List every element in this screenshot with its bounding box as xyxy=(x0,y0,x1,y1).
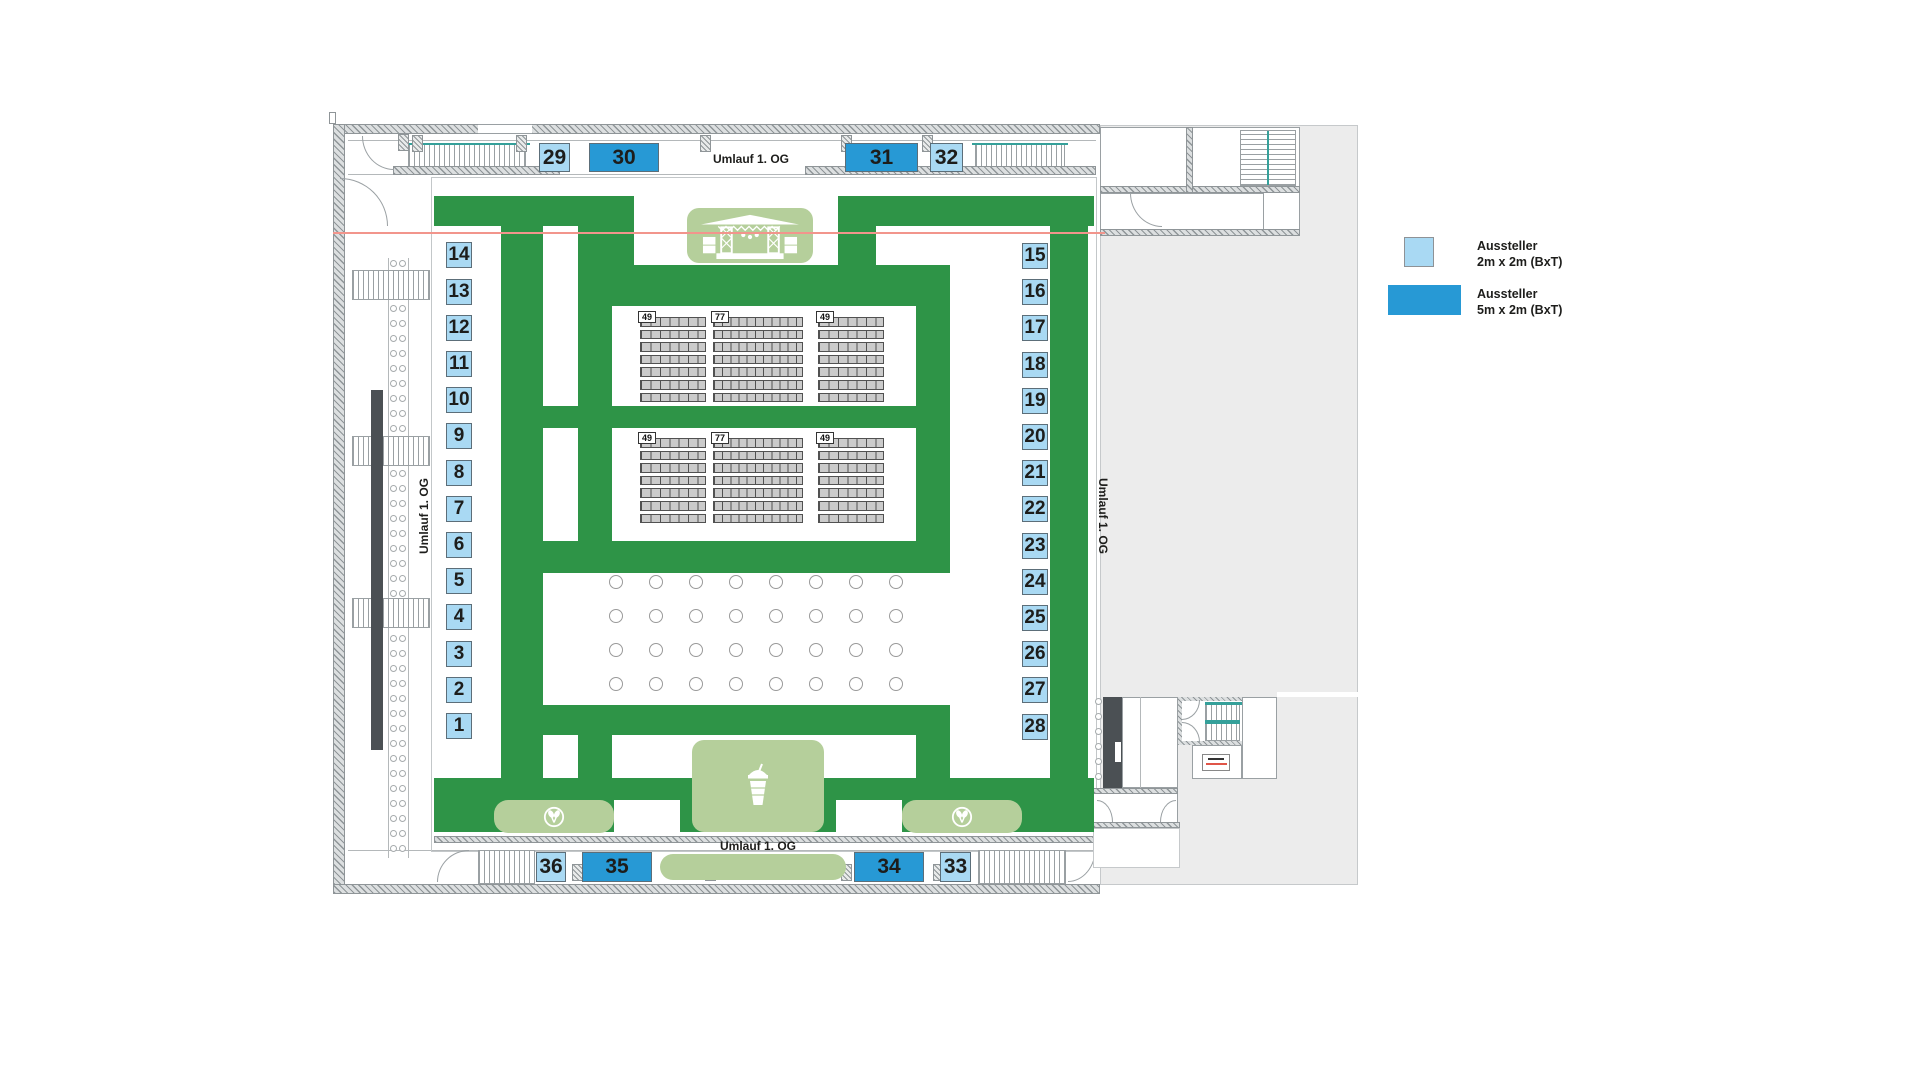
seat-row xyxy=(818,451,884,461)
wall-ornament-circle xyxy=(390,770,397,777)
wall-corner-stub xyxy=(329,112,336,124)
wall-ornament-circle xyxy=(390,740,397,747)
seat-row xyxy=(713,380,803,390)
wall-ornament-circle xyxy=(390,515,397,522)
seat-row xyxy=(640,330,706,340)
round-table xyxy=(649,609,663,623)
door-arc-bottom-left xyxy=(437,850,469,882)
booth-25[interactable]: 25 xyxy=(1022,605,1048,631)
wall-ornament-circle xyxy=(390,335,397,342)
booth-13[interactable]: 13 xyxy=(446,279,472,305)
red-reference-line xyxy=(333,232,1105,234)
wall-ornament-circle xyxy=(399,260,406,267)
round-table xyxy=(609,609,623,623)
wall-ornament-circle xyxy=(399,845,406,852)
wall-ornament-circle xyxy=(390,635,397,642)
walkway-under-stage xyxy=(578,265,950,306)
legend-2m-line1: Aussteller xyxy=(1477,238,1562,254)
wall-ornament-circle xyxy=(399,485,406,492)
wall-ornament-circle xyxy=(399,800,406,807)
wall-ornament-circle xyxy=(399,830,406,837)
booth-30[interactable]: 30 xyxy=(589,143,659,172)
wall-ornament-circle xyxy=(1095,773,1102,780)
bottom-band-notch-right xyxy=(836,800,902,832)
wall-ornament-circle xyxy=(399,470,406,477)
booth-3[interactable]: 3 xyxy=(446,641,472,667)
round-table xyxy=(649,677,663,691)
booth-27[interactable]: 27 xyxy=(1022,677,1048,703)
bottom-row-pill xyxy=(660,854,846,880)
walkway-top-band-left xyxy=(434,196,578,226)
walkway-v2-ext xyxy=(578,735,612,778)
gray-white-slit xyxy=(1277,692,1358,697)
wall-ornament-circle xyxy=(390,560,397,567)
br-label-text-red xyxy=(1206,763,1227,765)
legend-swatch-5m xyxy=(1388,285,1461,315)
wall-ornament-circle xyxy=(399,320,406,327)
legend-5m-line2: 5m x 2m (BxT) xyxy=(1477,302,1562,318)
seat-count-label: 49 xyxy=(638,311,656,323)
wall-ornament-circle xyxy=(390,425,397,432)
booth-7[interactable]: 7 xyxy=(446,496,472,522)
booth-17[interactable]: 17 xyxy=(1022,315,1048,341)
left-stair-block-3 xyxy=(352,598,430,628)
seat-row xyxy=(640,501,706,511)
booth-20[interactable]: 20 xyxy=(1022,424,1048,450)
legend-label-5m: Aussteller 5m x 2m (BxT) xyxy=(1477,286,1562,318)
stairs-bottom-left xyxy=(478,850,535,884)
br-room-white xyxy=(1122,697,1178,788)
left-dark-bar xyxy=(371,390,383,750)
wall-ornament-circle xyxy=(390,785,397,792)
seat-row xyxy=(713,367,803,377)
corridor-label-bottom: Umlauf 1. OG xyxy=(720,839,796,853)
left-stair-block-2 xyxy=(352,436,430,466)
seat-row xyxy=(640,488,706,498)
wall-ornament-circle xyxy=(390,470,397,477)
round-table xyxy=(609,677,623,691)
seat-row xyxy=(818,501,884,511)
round-table xyxy=(769,575,783,589)
booth-16[interactable]: 16 xyxy=(1022,279,1048,305)
wall-ornament-circle xyxy=(390,710,397,717)
booth-6[interactable]: 6 xyxy=(446,532,472,558)
wall-ornament-circle xyxy=(390,350,397,357)
wall-ornament-circle xyxy=(390,500,397,507)
round-table xyxy=(729,609,743,623)
booth-35[interactable]: 35 xyxy=(582,852,652,882)
booth-34[interactable]: 34 xyxy=(854,852,924,882)
round-table xyxy=(809,609,823,623)
wall-ornament-circle xyxy=(390,755,397,762)
wall-ornament-circle xyxy=(399,650,406,657)
corridor-label-top: Umlauf 1. OG xyxy=(713,152,789,166)
wall-ornament-circle xyxy=(390,845,397,852)
booth-36[interactable]: 36 xyxy=(536,852,566,882)
round-table xyxy=(649,643,663,657)
legend-label-2m: Aussteller 2m x 2m (BxT) xyxy=(1477,238,1562,270)
room-tr-wall-v xyxy=(1186,127,1193,193)
round-table xyxy=(769,609,783,623)
round-table xyxy=(849,609,863,623)
seat-row xyxy=(818,342,884,352)
round-table xyxy=(809,575,823,589)
legend-2m-line2: 2m x 2m (BxT) xyxy=(1477,254,1562,270)
legend-5m-line1: Aussteller xyxy=(1477,286,1562,302)
round-table xyxy=(729,677,743,691)
column-marker xyxy=(398,134,409,151)
stage-icon xyxy=(697,212,803,260)
wall-ornament-circle xyxy=(390,815,397,822)
corridor-label-right: Umlauf 1. OG xyxy=(1096,478,1110,554)
wall-ornament-circle xyxy=(399,380,406,387)
wall-ornament-circle xyxy=(390,800,397,807)
round-table xyxy=(729,643,743,657)
br-white-strip xyxy=(1093,828,1180,868)
seat-row xyxy=(713,463,803,473)
booth-9[interactable]: 9 xyxy=(446,423,472,449)
seat-row xyxy=(818,380,884,390)
round-table xyxy=(769,677,783,691)
bottom-band-notch-left xyxy=(614,800,680,832)
booth-2[interactable]: 2 xyxy=(446,677,472,703)
round-table xyxy=(809,643,823,657)
round-table xyxy=(889,575,903,589)
wall-ornament-circle xyxy=(399,575,406,582)
wall-ornament-circle xyxy=(390,725,397,732)
booth-19[interactable]: 19 xyxy=(1022,388,1048,414)
br-room-line xyxy=(1140,697,1141,788)
booth-31[interactable]: 31 xyxy=(845,143,918,172)
door-arc-top-left xyxy=(362,136,394,170)
smoothie-cup-icon xyxy=(745,762,771,808)
booth-11[interactable]: 11 xyxy=(446,351,472,377)
left-strip-line2 xyxy=(408,258,409,858)
wall-ornament-circle xyxy=(399,770,406,777)
seat-row xyxy=(818,393,884,403)
wall-ornament-circle xyxy=(390,680,397,687)
walkway-v2 xyxy=(578,306,612,573)
round-table xyxy=(729,575,743,589)
room-tr-band xyxy=(1100,186,1300,193)
wall-ornament-circle xyxy=(1095,728,1102,735)
wall-ornament-circle xyxy=(390,695,397,702)
stair-rail-top-left xyxy=(405,143,530,145)
wall-ornament-circle xyxy=(390,530,397,537)
corridor-label-left: Umlauf 1. OG xyxy=(417,478,431,554)
seat-row xyxy=(713,476,803,486)
booth-28[interactable]: 28 xyxy=(1022,714,1048,740)
wall-ornament-circle xyxy=(390,320,397,327)
column-marker xyxy=(700,135,711,152)
wall-ornament-circle xyxy=(399,365,406,372)
seat-row xyxy=(640,380,706,390)
seat-row xyxy=(713,330,803,340)
booth-21[interactable]: 21 xyxy=(1022,460,1048,486)
round-table xyxy=(609,575,623,589)
seat-row xyxy=(640,367,706,377)
seat-count-label: 77 xyxy=(711,311,729,323)
wall-ornament-circle xyxy=(399,335,406,342)
booth-32[interactable]: 32 xyxy=(930,143,963,172)
wall-ornament-circle xyxy=(390,305,397,312)
top-wall-opening xyxy=(478,124,532,134)
seat-count-label: 49 xyxy=(816,432,834,444)
round-table xyxy=(769,643,783,657)
seat-row xyxy=(713,514,803,524)
wall-ornament-circle xyxy=(399,560,406,567)
seat-row xyxy=(818,476,884,486)
seat-row xyxy=(713,355,803,365)
seat-row xyxy=(640,355,706,365)
seat-count-label: 49 xyxy=(816,311,834,323)
wall-ornament-circle xyxy=(390,830,397,837)
wall-ornament-circle xyxy=(399,815,406,822)
round-table xyxy=(649,575,663,589)
wall-ornament-circle xyxy=(390,650,397,657)
wall-ornament-circle xyxy=(390,365,397,372)
seat-row xyxy=(818,330,884,340)
wall-ornament-circle xyxy=(399,305,406,312)
booth-5[interactable]: 5 xyxy=(446,568,472,594)
round-table xyxy=(689,677,703,691)
seat-row xyxy=(640,476,706,486)
wall-ornament-circle xyxy=(390,380,397,387)
room-tr-bottom-band xyxy=(1100,229,1300,236)
wall-ornament-circle xyxy=(399,425,406,432)
column-marker xyxy=(412,135,423,152)
seat-row xyxy=(818,463,884,473)
booth-1[interactable]: 1 xyxy=(446,713,472,739)
wall-ornament-circle xyxy=(390,395,397,402)
booth-33[interactable]: 33 xyxy=(940,852,971,882)
booth-26[interactable]: 26 xyxy=(1022,641,1048,667)
stair-wall-top-left xyxy=(393,166,560,175)
seat-row xyxy=(640,393,706,403)
round-table xyxy=(849,677,863,691)
walkway-v4 xyxy=(1050,226,1088,778)
booth-29[interactable]: 29 xyxy=(539,143,570,172)
wall-ornament-circle xyxy=(399,530,406,537)
seat-row xyxy=(713,488,803,498)
wall-ornament-circle xyxy=(399,545,406,552)
stairs-bottom-right xyxy=(978,850,1066,884)
wall-bottom xyxy=(333,884,1100,894)
round-table xyxy=(689,609,703,623)
booth-8[interactable]: 8 xyxy=(446,460,472,486)
seat-row xyxy=(713,501,803,511)
booth-14[interactable]: 14 xyxy=(446,242,472,268)
wall-ornament-circle xyxy=(399,740,406,747)
br-stair-rail2 xyxy=(1205,720,1240,724)
mask-icon xyxy=(543,806,565,828)
walkway-top-band-right xyxy=(876,196,1094,226)
wall-ornament-circle xyxy=(390,410,397,417)
seat-count-label: 49 xyxy=(638,432,656,444)
mask-icon xyxy=(951,806,973,828)
wall-ornament-circle xyxy=(399,635,406,642)
walkway-band-b xyxy=(501,541,950,573)
wall-ornament-circle xyxy=(399,755,406,762)
wall-ornament-circle xyxy=(399,665,406,672)
round-table xyxy=(889,643,903,657)
wall-left xyxy=(333,124,345,892)
round-table xyxy=(689,643,703,657)
stair-rail-top-right xyxy=(972,143,1068,145)
round-table xyxy=(849,643,863,657)
round-table xyxy=(609,643,623,657)
top-corridor-line xyxy=(348,140,1096,141)
wall-ornament-circle xyxy=(399,725,406,732)
walkway-band-c xyxy=(501,705,950,735)
seat-row xyxy=(640,463,706,473)
wall-ornament-circle xyxy=(390,260,397,267)
legend-swatch-2m xyxy=(1404,237,1434,267)
seat-row xyxy=(818,488,884,498)
booth-18[interactable]: 18 xyxy=(1022,352,1048,378)
wall-ornament-circle xyxy=(1095,743,1102,750)
walkway-v3-ext xyxy=(916,735,950,778)
br-label-text-dark xyxy=(1208,758,1224,760)
wall-ornament-circle xyxy=(399,680,406,687)
booth-10[interactable]: 10 xyxy=(446,387,472,413)
door-arc-bottom-right xyxy=(1068,848,1096,882)
left-stair-block-1 xyxy=(352,270,430,300)
wall-ornament-circle xyxy=(399,395,406,402)
wall-ornament-circle xyxy=(1095,713,1102,720)
left-strip-line1 xyxy=(388,258,389,858)
seat-row xyxy=(713,451,803,461)
seat-row xyxy=(713,342,803,352)
wall-ornament-circle xyxy=(399,410,406,417)
round-table xyxy=(889,609,903,623)
wall-ornament-circle xyxy=(399,515,406,522)
wall-ornament-circle xyxy=(390,575,397,582)
seat-row xyxy=(818,367,884,377)
seat-row xyxy=(713,393,803,403)
seat-row xyxy=(640,451,706,461)
seat-row xyxy=(818,355,884,365)
round-table xyxy=(889,677,903,691)
wall-ornament-circle xyxy=(399,590,406,597)
floor-plan-canvas: Umlauf 1. OG Umlauf 1. OG Umlauf 1. OG U… xyxy=(0,0,1920,1080)
wall-ornament-circle xyxy=(390,590,397,597)
walkway-band-a xyxy=(501,406,950,428)
walkway-v3 xyxy=(916,306,950,573)
seat-row xyxy=(640,342,706,352)
round-table xyxy=(809,677,823,691)
booth-4[interactable]: 4 xyxy=(446,604,472,630)
walkway-v1 xyxy=(501,226,543,778)
wall-ornament-circle xyxy=(399,350,406,357)
booth-12[interactable]: 12 xyxy=(446,315,472,341)
booth-24[interactable]: 24 xyxy=(1022,569,1048,595)
wall-ornament-circle xyxy=(1095,698,1102,705)
door-arc-left-corridor xyxy=(340,178,388,226)
wall-ornament-circle xyxy=(390,665,397,672)
wall-ornament-circle xyxy=(399,695,406,702)
br-lower-band-top xyxy=(1093,788,1178,794)
seat-row xyxy=(818,514,884,524)
wall-ornament-circle xyxy=(399,710,406,717)
wall-ornament-circle xyxy=(390,485,397,492)
wall-ornament-circle xyxy=(1095,758,1102,765)
wall-ornament-circle xyxy=(399,500,406,507)
round-table xyxy=(849,575,863,589)
wall-top xyxy=(333,124,1100,134)
column-marker xyxy=(516,135,527,152)
stair-rail-tr-room xyxy=(1267,131,1269,185)
wall-ornament-circle xyxy=(399,785,406,792)
booth-22[interactable]: 22 xyxy=(1022,496,1048,522)
booth-15[interactable]: 15 xyxy=(1022,243,1048,269)
booth-23[interactable]: 23 xyxy=(1022,533,1048,559)
seat-count-label: 77 xyxy=(711,432,729,444)
wall-ornament-circle xyxy=(390,545,397,552)
br-dark-slot xyxy=(1115,742,1121,762)
seat-row xyxy=(640,514,706,524)
br-room-right xyxy=(1242,697,1277,779)
round-table xyxy=(689,575,703,589)
